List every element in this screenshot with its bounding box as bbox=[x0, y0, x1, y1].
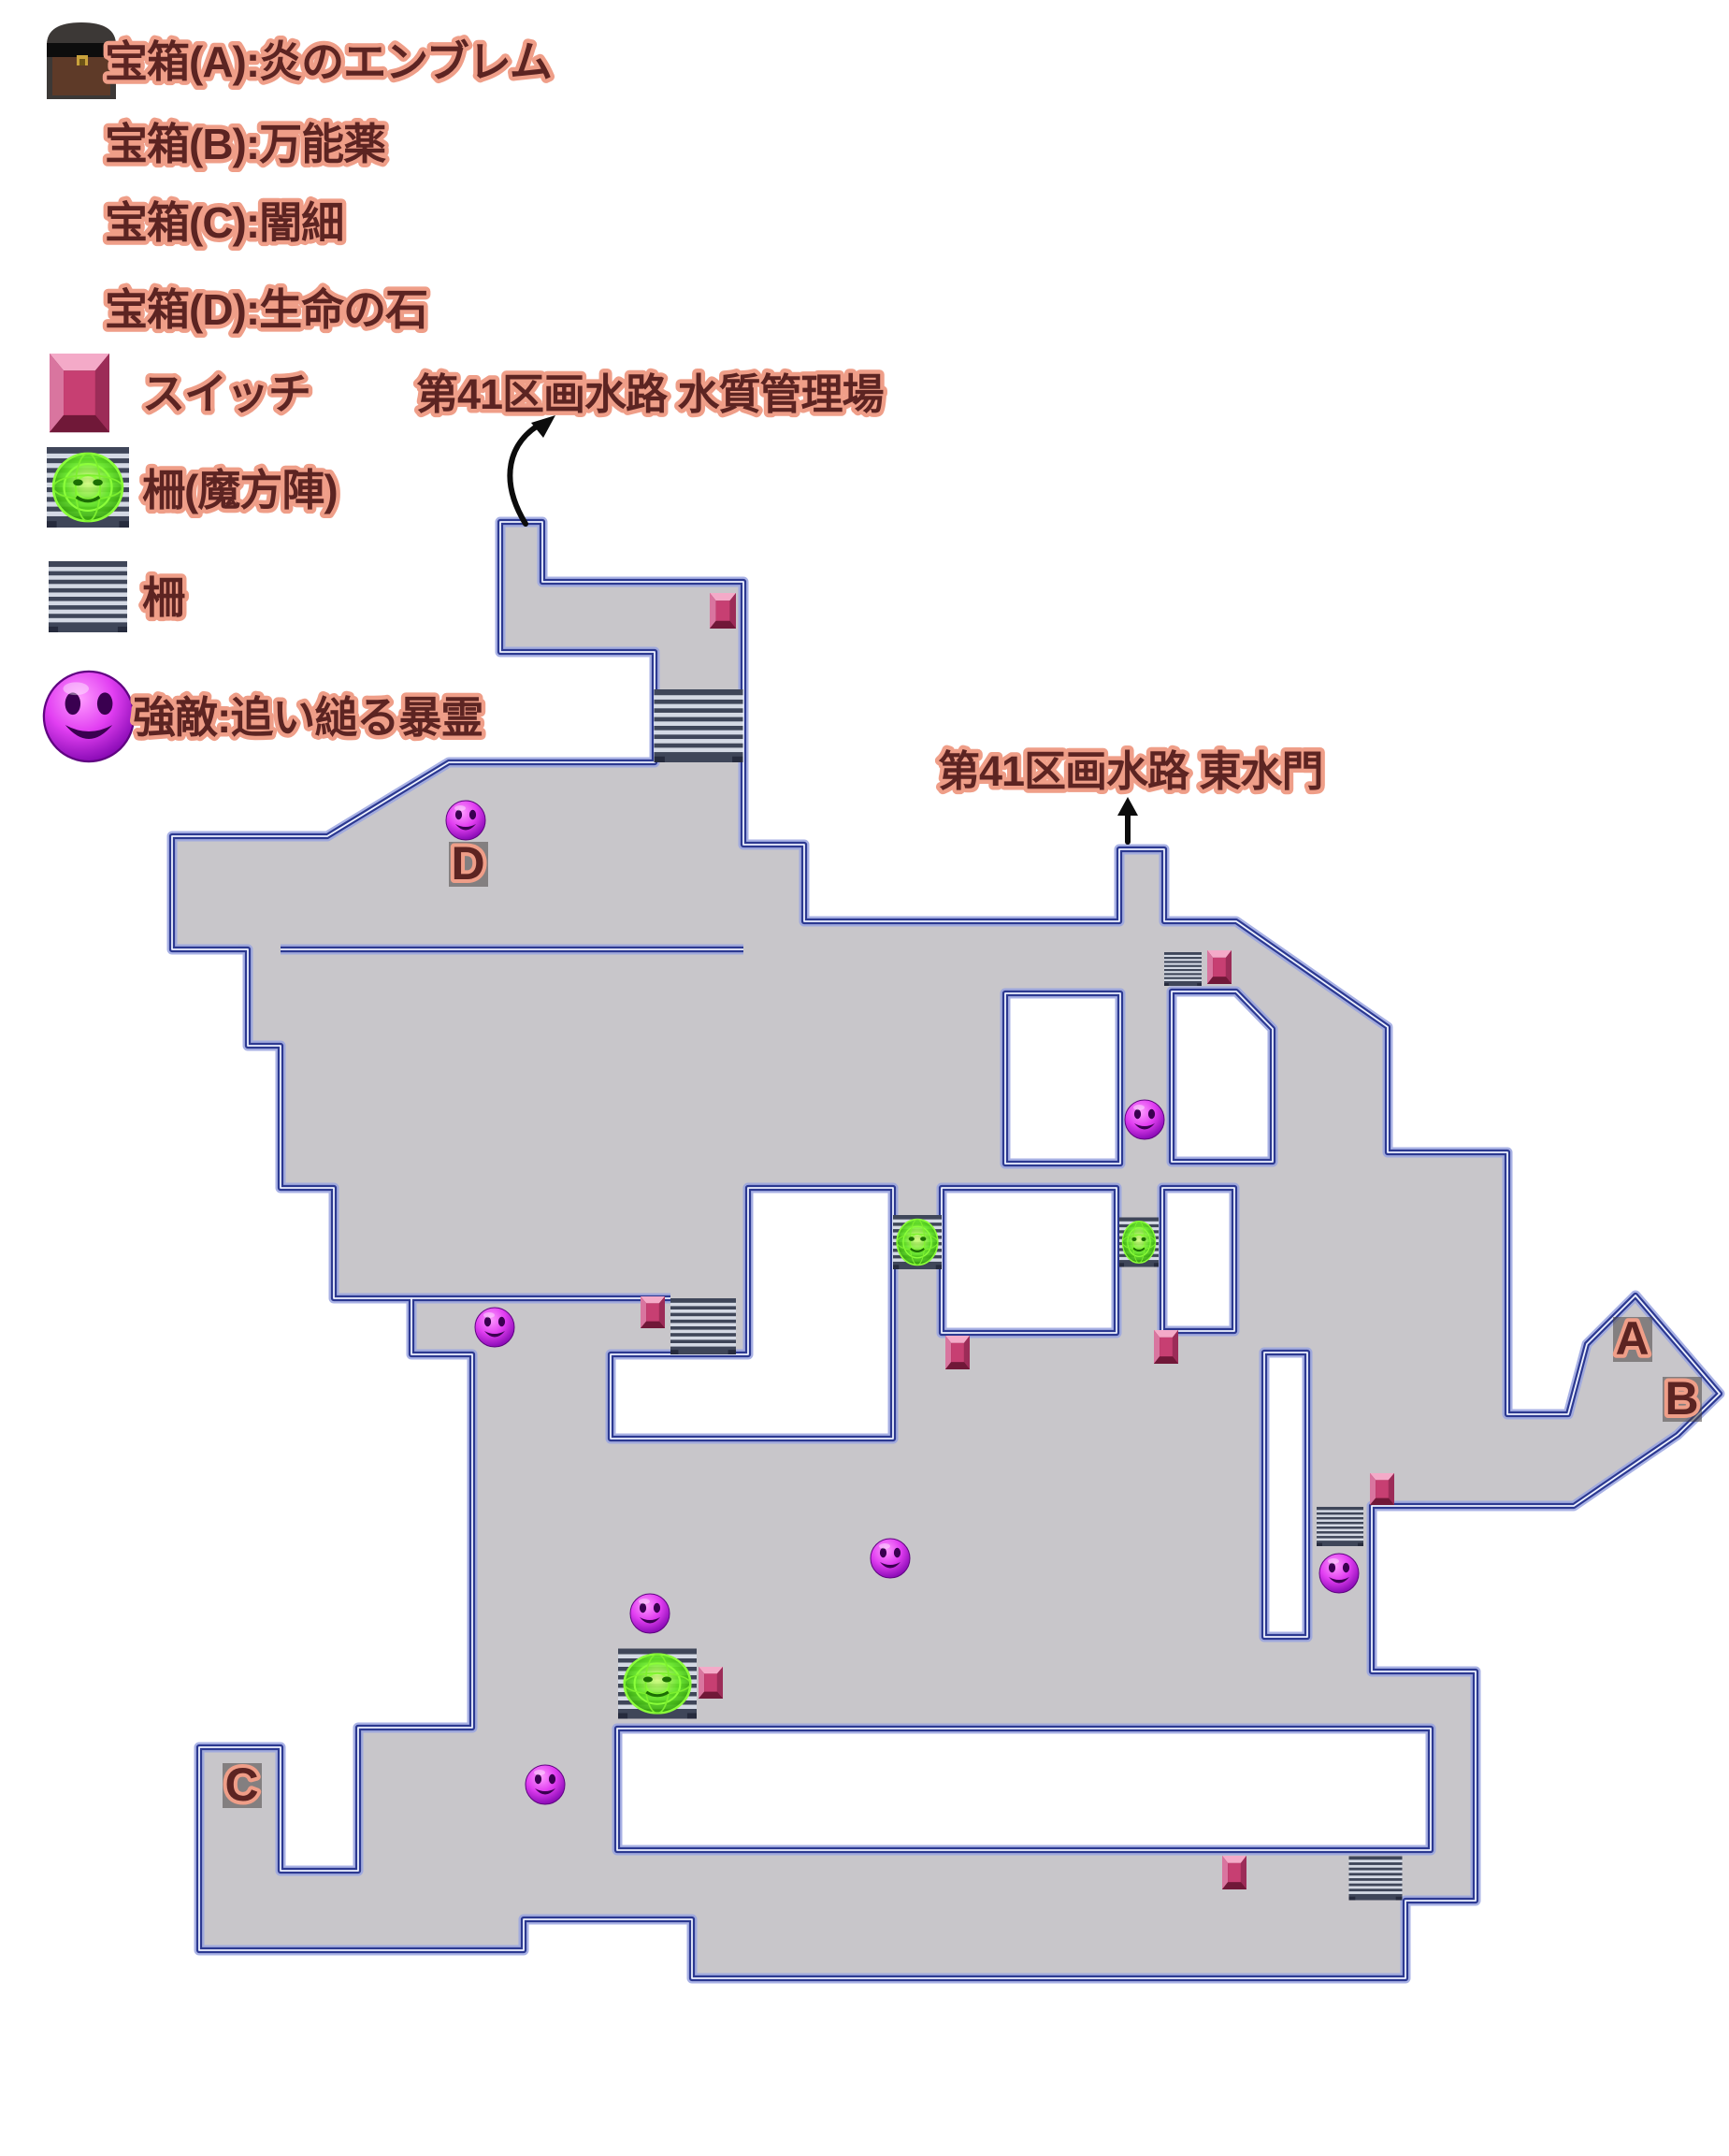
switch-icon bbox=[641, 1296, 665, 1328]
legend-enemy-label: 強敵:追い縋る暴霊 bbox=[133, 693, 483, 742]
magic-fence-gate-icon bbox=[618, 1649, 697, 1719]
switch-icon bbox=[699, 1667, 723, 1699]
dungeon-map-canvas: ABCD 第41区画水路 水質管理場 第41区画水路 東水門 宝箱(A):炎のエ… bbox=[0, 0, 1729, 2156]
legend-magic-fence-label: 柵(魔方陣) bbox=[142, 466, 338, 514]
fence-gate-icon bbox=[670, 1298, 736, 1354]
fence-gate-icon bbox=[1317, 1507, 1363, 1546]
magic-fence-gate-icon bbox=[893, 1215, 942, 1269]
treasure-letter: D bbox=[451, 837, 483, 890]
treasure-letter: A bbox=[1615, 1312, 1648, 1365]
enemy-ball-icon bbox=[526, 1765, 565, 1804]
fence-icon bbox=[49, 561, 127, 632]
enemy-ball-icon bbox=[871, 1539, 910, 1578]
fence-gate-icon bbox=[1349, 1857, 1403, 1901]
treasure-point-d: D bbox=[449, 837, 488, 890]
switch-icon bbox=[1207, 950, 1232, 984]
switch-icon bbox=[1370, 1473, 1394, 1505]
enemy-ball-icon bbox=[1319, 1554, 1359, 1593]
legend-treasure-b-label: 宝箱(B):万能薬 bbox=[105, 120, 386, 168]
treasure-letter: B bbox=[1664, 1372, 1697, 1425]
enemy-ball-icon bbox=[1125, 1100, 1164, 1139]
magic-fence-icon bbox=[47, 447, 129, 528]
magic-fence-gate-icon bbox=[1119, 1218, 1159, 1267]
treasure-letter: C bbox=[224, 1758, 257, 1811]
up-arrow-head bbox=[1117, 797, 1138, 816]
treasure-point-a: A bbox=[1613, 1312, 1652, 1365]
treasure-point-c: C bbox=[223, 1758, 262, 1811]
label-east-water-gate: 第41区画水路 東水門 bbox=[938, 747, 1323, 795]
legend-treasure-c-label: 宝箱(C):闇細 bbox=[105, 198, 343, 247]
enemy-ball-icon bbox=[44, 672, 134, 761]
switch-icon bbox=[1154, 1330, 1178, 1364]
guide-map-page: ABCD 第41区画水路 水質管理場 第41区画水路 東水門 宝箱(A):炎のエ… bbox=[0, 0, 1729, 2156]
curved-arrow bbox=[510, 422, 544, 524]
legend-treasure-a-label: 宝箱(A):炎のエンブレム bbox=[105, 37, 552, 86]
enemy-ball-icon bbox=[630, 1594, 670, 1633]
legend-switch-label: スイッチ bbox=[142, 369, 310, 418]
fence-gate-icon bbox=[1164, 952, 1202, 986]
switch-icon bbox=[945, 1336, 970, 1369]
label-water-quality-plant: 第41区画水路 水質管理場 bbox=[416, 370, 884, 418]
fence-gate-icon bbox=[655, 689, 743, 762]
legend-treasure-d-label: 宝箱(D):生命の石 bbox=[105, 285, 427, 334]
enemy-ball-icon bbox=[446, 801, 485, 840]
legend-fence-label: 柵 bbox=[142, 573, 185, 622]
enemy-ball-icon bbox=[475, 1308, 514, 1347]
treasure-point-b: B bbox=[1663, 1372, 1702, 1425]
switch-icon bbox=[710, 593, 736, 629]
switch-icon bbox=[1222, 1856, 1246, 1889]
switch-icon bbox=[50, 354, 109, 432]
curved-arrow-head bbox=[531, 415, 555, 438]
